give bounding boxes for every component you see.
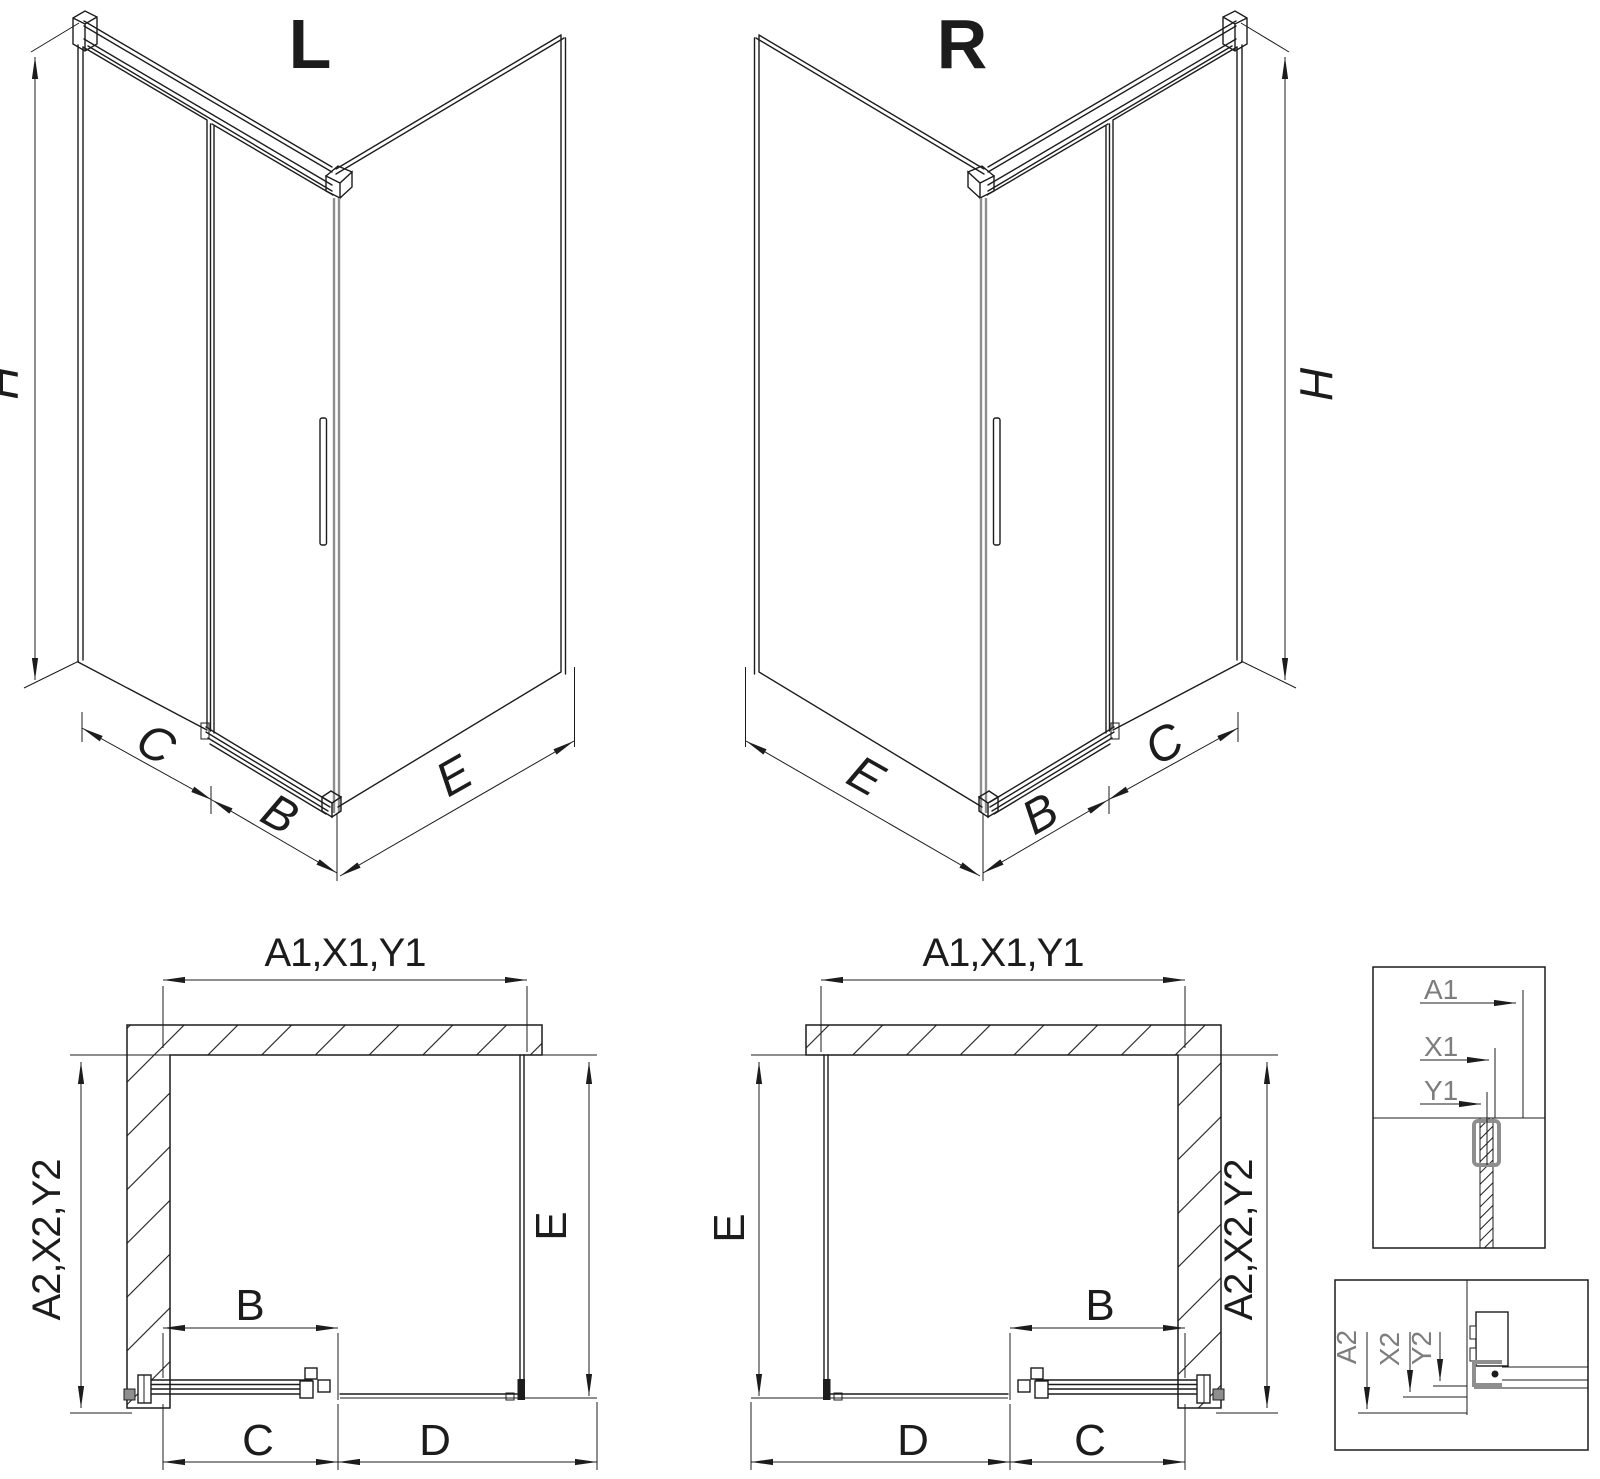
dim-a1x1y1-label-plan-right: A1,X1,Y1 bbox=[922, 931, 1083, 975]
wall-section-left-plan bbox=[127, 1025, 542, 1408]
drawing-sheet: L H C B E R H E B C A1,X1,Y1 A2,X2,Y2 E … bbox=[0, 0, 1600, 1474]
detail-y2-label: Y2 bbox=[1406, 1331, 1437, 1365]
dim-a2x2y2-label-plan-right: A2,X2,Y2 bbox=[1217, 1159, 1261, 1320]
dim-c-label-plan-right: C bbox=[1074, 1416, 1106, 1465]
dim-b-label-plan-right: B bbox=[1085, 1281, 1114, 1330]
detail-bottom-dims: A2 X2 Y2 bbox=[1331, 1280, 1588, 1450]
plan-view-right: A1,X1,Y1 E A2,X2,Y2 B D C bbox=[705, 931, 1278, 1470]
detail-x2-label: X2 bbox=[1374, 1332, 1405, 1366]
plan-view-left: A1,X1,Y1 A2,X2,Y2 E B C D bbox=[25, 931, 597, 1470]
iso-right-label: R bbox=[937, 5, 988, 83]
dim-e-label-iso-right: E bbox=[839, 746, 894, 808]
iso-left-label: L bbox=[289, 5, 332, 83]
dim-a1x1y1-label-plan-left: A1,X1,Y1 bbox=[264, 931, 425, 975]
detail-top-dims: A1 X1 Y1 bbox=[1373, 967, 1545, 1248]
technical-drawing: L H C B E R H E B C A1,X1,Y1 A2,X2,Y2 E … bbox=[0, 0, 1600, 1474]
dim-d-label-plan-right: D bbox=[897, 1416, 929, 1465]
dim-h-label-left: H bbox=[0, 366, 28, 400]
iso-view-left: L H C B E bbox=[0, 5, 575, 881]
detail-y1-label: Y1 bbox=[1424, 1075, 1458, 1106]
detail-a1-label: A1 bbox=[1424, 974, 1458, 1005]
dim-c-label-plan-left: C bbox=[242, 1416, 274, 1465]
iso-view-right: R H E B C bbox=[746, 5, 1343, 881]
dim-c-label-iso-left: C bbox=[127, 713, 184, 776]
dim-a2x2y2-label-plan-left: A2,X2,Y2 bbox=[25, 1159, 69, 1320]
wall-section-right-plan bbox=[806, 1025, 1221, 1408]
dim-d-label-plan-left: D bbox=[419, 1416, 451, 1465]
dim-b-label-plan-left: B bbox=[235, 1281, 264, 1330]
dim-e-label-plan-left: E bbox=[527, 1211, 576, 1240]
dim-c-label-iso-right: C bbox=[1136, 713, 1193, 776]
detail-x1-label: X1 bbox=[1424, 1031, 1458, 1062]
dim-e-label-iso-left: E bbox=[427, 745, 482, 807]
detail-a2-label: A2 bbox=[1331, 1330, 1362, 1364]
dim-e-label-plan-right: E bbox=[705, 1213, 754, 1242]
dim-h-label-right: H bbox=[1290, 366, 1342, 400]
